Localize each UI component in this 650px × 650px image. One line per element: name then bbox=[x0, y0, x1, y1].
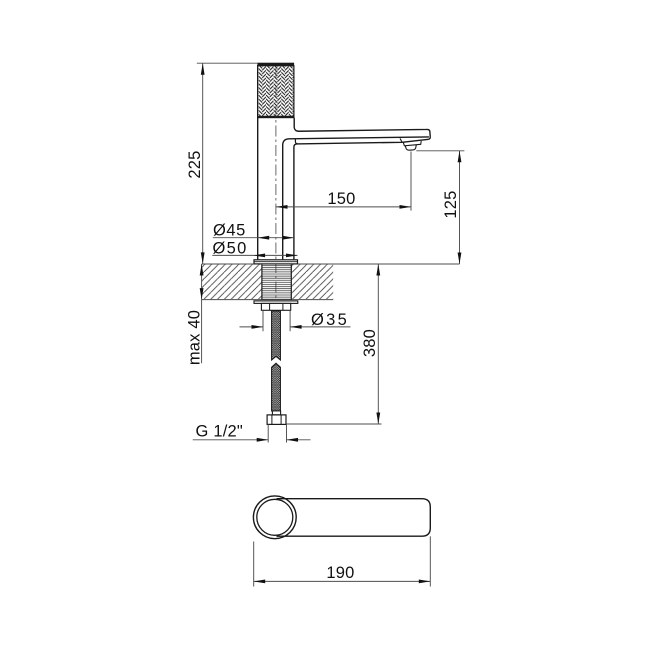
svg-text:190: 190 bbox=[326, 564, 354, 582]
svg-text:Ø35: Ø35 bbox=[311, 311, 347, 329]
svg-text:Ø50: Ø50 bbox=[213, 240, 247, 258]
svg-text:G 1/2": G 1/2" bbox=[196, 422, 243, 440]
svg-text:max 40: max 40 bbox=[186, 310, 204, 365]
svg-text:125: 125 bbox=[442, 190, 460, 218]
svg-text:Ø45: Ø45 bbox=[213, 222, 246, 240]
svg-text:380: 380 bbox=[361, 329, 379, 357]
svg-text:225: 225 bbox=[186, 151, 204, 179]
svg-text:150: 150 bbox=[327, 190, 355, 208]
